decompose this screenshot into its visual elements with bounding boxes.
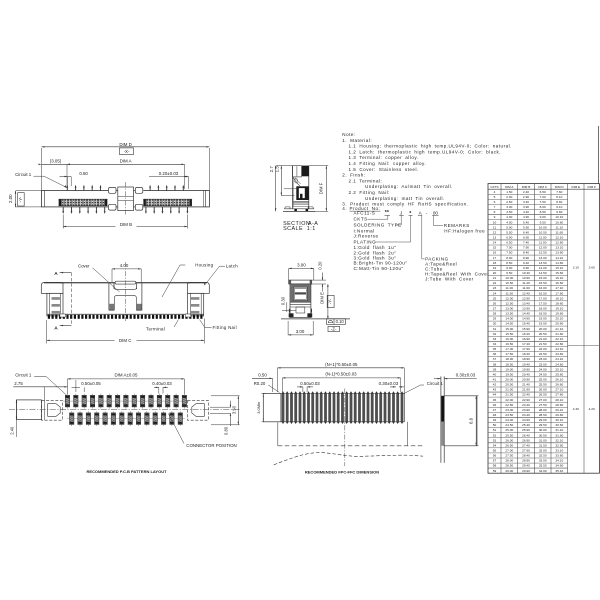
svg-text:10.00: 10.00 bbox=[505, 276, 513, 280]
svg-text:35: 35 bbox=[493, 347, 497, 351]
svg-text:55: 55 bbox=[493, 449, 497, 453]
svg-text:HF:Halogen free: HF:Halogen free bbox=[444, 229, 485, 234]
svg-text:25.50: 25.50 bbox=[539, 383, 547, 387]
svg-text:2.1 Terminal:: 2.1 Terminal: bbox=[349, 178, 383, 183]
svg-text:3.90: 3.90 bbox=[523, 205, 529, 209]
svg-text:25.90: 25.90 bbox=[522, 428, 530, 432]
svg-text:22: 22 bbox=[493, 281, 497, 285]
svg-text:51: 51 bbox=[493, 428, 497, 432]
svg-text:20.60: 20.60 bbox=[555, 322, 563, 326]
svg-text:19.50: 19.50 bbox=[539, 322, 547, 326]
svg-text:18.10: 18.10 bbox=[555, 296, 563, 300]
svg-text:24.50: 24.50 bbox=[505, 423, 513, 427]
svg-text:4: 4 bbox=[494, 190, 496, 194]
svg-text:15.10: 15.10 bbox=[555, 266, 563, 270]
svg-text:16.90: 16.90 bbox=[522, 337, 530, 341]
svg-text:27.60: 27.60 bbox=[555, 393, 563, 397]
svg-text:24.00: 24.00 bbox=[539, 367, 547, 371]
svg-text:Cover: Cover bbox=[78, 263, 90, 268]
svg-text:Note:: Note: bbox=[342, 132, 355, 137]
svg-text:12.40: 12.40 bbox=[522, 291, 530, 295]
svg-text:32.60: 32.60 bbox=[555, 443, 563, 447]
svg-text:10.40: 10.40 bbox=[522, 271, 530, 275]
svg-text:23.50: 23.50 bbox=[539, 362, 547, 366]
svg-text:6.90: 6.90 bbox=[523, 236, 529, 240]
svg-text:0.50: 0.50 bbox=[258, 373, 267, 378]
svg-text:7.40: 7.40 bbox=[523, 241, 529, 245]
svg-text:24.40: 24.40 bbox=[522, 413, 530, 417]
svg-text:8.00: 8.00 bbox=[540, 205, 546, 209]
svg-text:R0.20: R0.20 bbox=[254, 381, 266, 386]
svg-text:32.10: 32.10 bbox=[555, 438, 563, 442]
svg-text:4.90: 4.90 bbox=[523, 215, 529, 219]
svg-text:45: 45 bbox=[493, 398, 497, 402]
svg-text:DIM C: DIM C bbox=[119, 338, 131, 343]
svg-text:DIM A: DIM A bbox=[505, 185, 514, 189]
svg-text:DIM C: DIM C bbox=[538, 185, 548, 189]
svg-text:14.50: 14.50 bbox=[539, 271, 547, 275]
svg-text:23.90: 23.90 bbox=[522, 408, 530, 412]
svg-text:18.90: 18.90 bbox=[522, 357, 530, 361]
svg-text:49: 49 bbox=[493, 418, 497, 422]
svg-text:9.50: 9.50 bbox=[506, 271, 512, 275]
svg-text:28: 28 bbox=[493, 312, 497, 316]
svg-text:11.40: 11.40 bbox=[522, 281, 530, 285]
svg-text:28.50: 28.50 bbox=[505, 464, 513, 468]
svg-text:Circuit 1: Circuit 1 bbox=[15, 372, 32, 377]
svg-text:-Y-: -Y- bbox=[18, 196, 23, 202]
svg-text:25.60: 25.60 bbox=[555, 372, 563, 376]
svg-text:2.50: 2.50 bbox=[506, 200, 512, 204]
svg-text:CKTS: CKTS bbox=[490, 185, 498, 189]
svg-text:24.10: 24.10 bbox=[555, 357, 563, 361]
svg-text:29.10: 29.10 bbox=[555, 408, 563, 412]
svg-text:5.40: 5.40 bbox=[523, 220, 529, 224]
svg-text:42: 42 bbox=[493, 383, 497, 387]
svg-text:30.10: 30.10 bbox=[555, 418, 563, 422]
svg-text:1. Material:: 1. Material: bbox=[342, 138, 372, 143]
svg-text:53: 53 bbox=[493, 438, 497, 442]
svg-text:0.20±0.03: 0.20±0.03 bbox=[159, 171, 179, 176]
svg-text:14.40: 14.40 bbox=[522, 312, 530, 316]
svg-text:4.20: 4.20 bbox=[589, 407, 595, 411]
svg-text:1.3 Terminal: copper alloy.: 1.3 Terminal: copper alloy. bbox=[349, 155, 419, 160]
svg-text:23.60: 23.60 bbox=[555, 352, 563, 356]
svg-text:27.50: 27.50 bbox=[505, 454, 513, 458]
svg-text:1.4 Fitting Nail: copper alloy: 1.4 Fitting Nail: copper alloy. bbox=[349, 161, 427, 166]
svg-text:17.90: 17.90 bbox=[522, 347, 530, 351]
svg-text:DIM E: DIM E bbox=[571, 185, 580, 189]
svg-text:8.40: 8.40 bbox=[523, 251, 529, 255]
svg-text:18.00: 18.00 bbox=[539, 307, 547, 311]
svg-text:17.50: 17.50 bbox=[505, 352, 513, 356]
svg-text:J:Reverse: J:Reverse bbox=[354, 234, 379, 239]
svg-text:3.00: 3.00 bbox=[506, 205, 512, 209]
svg-text:11.60: 11.60 bbox=[556, 230, 564, 234]
svg-text:14.00: 14.00 bbox=[539, 266, 547, 270]
svg-text:48: 48 bbox=[493, 413, 497, 417]
svg-text:26.00: 26.00 bbox=[539, 388, 547, 392]
svg-text:31.10: 31.10 bbox=[555, 428, 563, 432]
svg-text:17.00: 17.00 bbox=[505, 347, 513, 351]
svg-text:41: 41 bbox=[493, 378, 497, 382]
svg-text:33.10: 33.10 bbox=[555, 449, 563, 453]
svg-text:15.60: 15.60 bbox=[555, 271, 563, 275]
svg-text:34: 34 bbox=[493, 342, 497, 346]
svg-text:21.60: 21.60 bbox=[555, 332, 563, 336]
svg-text:16.50: 16.50 bbox=[539, 291, 547, 295]
svg-text:22.00: 22.00 bbox=[505, 398, 513, 402]
svg-text:32.50: 32.50 bbox=[539, 454, 547, 458]
svg-text:8.60: 8.60 bbox=[556, 200, 562, 204]
svg-text:21.40: 21.40 bbox=[522, 383, 530, 387]
svg-text:17.60: 17.60 bbox=[555, 291, 563, 295]
svg-text:Housing: Housing bbox=[195, 262, 213, 267]
svg-text:2.7: 2.7 bbox=[269, 166, 274, 173]
svg-text:23.40: 23.40 bbox=[522, 403, 530, 407]
svg-text:16.40: 16.40 bbox=[522, 332, 530, 336]
svg-text:36: 36 bbox=[493, 352, 497, 356]
svg-text:1:Gold flash 1u": 1:Gold flash 1u" bbox=[354, 245, 397, 250]
svg-text:2.00: 2.00 bbox=[8, 194, 13, 203]
svg-text:REMARKS: REMARKS bbox=[444, 223, 470, 228]
svg-text:25.00: 25.00 bbox=[539, 378, 547, 382]
svg-text:2.90: 2.90 bbox=[523, 195, 529, 199]
svg-text:17.00: 17.00 bbox=[539, 296, 547, 300]
svg-text:32.00: 32.00 bbox=[539, 449, 547, 453]
svg-text:8.90: 8.90 bbox=[523, 256, 529, 260]
svg-text:13: 13 bbox=[493, 236, 497, 240]
svg-text:5: 5 bbox=[494, 195, 496, 199]
svg-text:19.00: 19.00 bbox=[539, 317, 547, 321]
svg-text:5.00: 5.00 bbox=[506, 225, 512, 229]
svg-text:9.00: 9.00 bbox=[506, 266, 512, 270]
svg-text:9.90: 9.90 bbox=[523, 266, 529, 270]
svg-text:19.50: 19.50 bbox=[505, 372, 513, 376]
svg-text:26.60: 26.60 bbox=[555, 383, 563, 387]
svg-text:7.90: 7.90 bbox=[523, 246, 529, 250]
svg-text:39: 39 bbox=[493, 367, 497, 371]
svg-text:11.00: 11.00 bbox=[506, 286, 514, 290]
svg-text:47: 47 bbox=[493, 408, 497, 412]
svg-text:21.00: 21.00 bbox=[539, 337, 547, 341]
svg-text:-X-: -X- bbox=[124, 149, 130, 154]
svg-text:22.10: 22.10 bbox=[555, 337, 563, 341]
svg-text:1.3: 1.3 bbox=[275, 166, 280, 173]
svg-text:25.50: 25.50 bbox=[505, 433, 513, 437]
svg-text:3.60: 3.60 bbox=[589, 266, 595, 270]
svg-text:15.50: 15.50 bbox=[539, 281, 547, 285]
svg-text:34.10: 34.10 bbox=[555, 459, 563, 463]
svg-text:7.00: 7.00 bbox=[540, 195, 546, 199]
svg-text:14.00: 14.00 bbox=[505, 317, 513, 321]
svg-text:14.60: 14.60 bbox=[555, 261, 563, 265]
svg-text:7: 7 bbox=[494, 205, 496, 209]
svg-text:13.50: 13.50 bbox=[539, 261, 547, 265]
svg-text:4.30: 4.30 bbox=[573, 407, 579, 411]
svg-text:15.40: 15.40 bbox=[522, 322, 530, 326]
svg-text:20.00: 20.00 bbox=[539, 327, 547, 331]
svg-text:27.50: 27.50 bbox=[539, 403, 547, 407]
svg-text:31.60: 31.60 bbox=[555, 433, 563, 437]
svg-text:7.00: 7.00 bbox=[506, 246, 512, 250]
svg-text:18.50: 18.50 bbox=[505, 362, 513, 366]
svg-text:21.50: 21.50 bbox=[539, 342, 547, 346]
svg-text:33.00: 33.00 bbox=[539, 459, 547, 463]
svg-text:22.50: 22.50 bbox=[539, 352, 547, 356]
svg-text:23.10: 23.10 bbox=[555, 347, 563, 351]
svg-text:2.40: 2.40 bbox=[10, 426, 15, 435]
svg-text:PLATING: PLATING bbox=[354, 240, 377, 245]
svg-text:16.10: 16.10 bbox=[555, 276, 563, 280]
svg-text:35.10: 35.10 bbox=[555, 469, 563, 473]
svg-text:16.00: 16.00 bbox=[539, 286, 547, 290]
svg-text:25.00: 25.00 bbox=[505, 428, 513, 432]
svg-text:14.10: 14.10 bbox=[555, 256, 563, 260]
svg-text:19.00: 19.00 bbox=[505, 367, 513, 371]
svg-text:0.80: 0.80 bbox=[224, 426, 229, 435]
svg-text:10.50: 10.50 bbox=[539, 230, 547, 234]
svg-text:24.00: 24.00 bbox=[505, 418, 513, 422]
svg-text:12: 12 bbox=[493, 230, 497, 234]
svg-text:40: 40 bbox=[493, 372, 497, 376]
svg-text:8: 8 bbox=[494, 210, 496, 214]
svg-text:7.60: 7.60 bbox=[556, 190, 562, 194]
svg-text:DIM D: DIM D bbox=[555, 185, 565, 189]
svg-text:5.90: 5.90 bbox=[523, 225, 529, 229]
svg-text:16.00: 16.00 bbox=[505, 337, 513, 341]
svg-text:3.00: 3.00 bbox=[297, 263, 306, 268]
svg-text:(N+1)*0.50±0.05: (N+1)*0.50±0.05 bbox=[325, 362, 358, 367]
svg-text:33.50: 33.50 bbox=[539, 464, 547, 468]
svg-text:CONNECTOR POSITION: CONNECTOR POSITION bbox=[186, 443, 236, 448]
svg-text:27.00: 27.00 bbox=[505, 449, 513, 453]
svg-text:21.00: 21.00 bbox=[505, 388, 513, 392]
svg-text:CKTS: CKTS bbox=[354, 217, 368, 222]
svg-text:17: 17 bbox=[493, 256, 497, 260]
svg-text:C:Matt-Tin 90-120u": C:Matt-Tin 90-120u" bbox=[354, 266, 404, 271]
svg-text:15.00: 15.00 bbox=[539, 276, 547, 280]
svg-text:SOLDERING TYPE: SOLDERING TYPE bbox=[354, 223, 402, 228]
svg-text:0.30: 0.30 bbox=[281, 296, 286, 305]
svg-text:31.50: 31.50 bbox=[539, 443, 547, 447]
svg-text:23.50: 23.50 bbox=[505, 413, 513, 417]
svg-text:26.50: 26.50 bbox=[539, 393, 547, 397]
svg-text:18.60: 18.60 bbox=[555, 301, 563, 305]
svg-text:1.50: 1.50 bbox=[506, 190, 512, 194]
svg-text:25: 25 bbox=[493, 296, 497, 300]
svg-text:Latch: Latch bbox=[226, 264, 238, 269]
svg-text:17.40: 17.40 bbox=[522, 342, 530, 346]
svg-text:19.90: 19.90 bbox=[522, 367, 530, 371]
svg-text:11.10: 11.10 bbox=[556, 225, 564, 229]
svg-text:16.50: 16.50 bbox=[505, 342, 513, 346]
svg-text:0.30±0.03: 0.30±0.03 bbox=[379, 381, 399, 386]
svg-text:28.00: 28.00 bbox=[539, 408, 547, 412]
svg-text:20.10: 20.10 bbox=[555, 317, 563, 321]
svg-text:29.90: 29.90 bbox=[522, 469, 530, 473]
svg-text:AFC11-S: AFC11-S bbox=[354, 210, 376, 215]
svg-text:26.00: 26.00 bbox=[505, 438, 513, 442]
svg-text:0.30±0.03: 0.30±0.03 bbox=[456, 373, 476, 378]
svg-text:20: 20 bbox=[493, 271, 497, 275]
svg-text:21.50: 21.50 bbox=[505, 393, 513, 397]
svg-text:18.40: 18.40 bbox=[522, 352, 530, 356]
svg-text:3.50: 3.50 bbox=[231, 405, 236, 414]
svg-text:38: 38 bbox=[493, 362, 497, 366]
svg-text:20.00: 20.00 bbox=[505, 378, 513, 382]
svg-text:(3.05): (3.05) bbox=[50, 159, 62, 164]
svg-text:23.00: 23.00 bbox=[505, 408, 513, 412]
svg-text:DIM B: DIM B bbox=[120, 222, 132, 227]
svg-text:12.00: 12.00 bbox=[505, 296, 513, 300]
svg-text:18.00: 18.00 bbox=[505, 357, 513, 361]
svg-text:6.50: 6.50 bbox=[506, 241, 512, 245]
svg-text:14.90: 14.90 bbox=[522, 317, 530, 321]
svg-text:9.50: 9.50 bbox=[540, 220, 546, 224]
svg-text:10.60: 10.60 bbox=[555, 220, 563, 224]
svg-text:23.00: 23.00 bbox=[539, 357, 547, 361]
svg-text:14: 14 bbox=[493, 241, 497, 245]
svg-text:52: 52 bbox=[493, 433, 497, 437]
svg-text:26.40: 26.40 bbox=[522, 433, 530, 437]
svg-text:Underplating: Au/matt Tin over: Underplating: Au/matt Tin overall. bbox=[365, 184, 453, 189]
svg-text:2.75: 2.75 bbox=[14, 381, 23, 386]
svg-text:Terminal: Terminal bbox=[146, 326, 165, 331]
svg-text:30.00: 30.00 bbox=[539, 428, 547, 432]
svg-text:0.50±0.03: 0.50±0.03 bbox=[300, 381, 320, 386]
svg-text:Circuit 1: Circuit 1 bbox=[15, 172, 32, 177]
svg-text:2. Finsh:: 2. Finsh: bbox=[342, 173, 365, 178]
svg-text:-Y-: -Y- bbox=[328, 298, 333, 304]
svg-text:-Z-: -Z- bbox=[331, 327, 337, 332]
svg-text:1.5 Cover: Stainless steel.: 1.5 Cover: Stainless steel. bbox=[349, 167, 419, 172]
svg-text:26.50: 26.50 bbox=[505, 443, 513, 447]
svg-text:0.10: 0.10 bbox=[336, 319, 345, 324]
svg-text:6.40: 6.40 bbox=[523, 230, 529, 234]
svg-text:3.50: 3.50 bbox=[506, 210, 512, 214]
svg-text:3.00: 3.00 bbox=[296, 329, 305, 334]
svg-text:27: 27 bbox=[493, 307, 497, 311]
svg-text:13.00: 13.00 bbox=[505, 307, 513, 311]
svg-text:J:Tube With Cover: J:Tube With Cover bbox=[425, 277, 474, 282]
svg-text:59: 59 bbox=[493, 469, 497, 473]
svg-text:29.60: 29.60 bbox=[555, 413, 563, 417]
svg-text:6.0: 6.0 bbox=[469, 417, 474, 424]
svg-text:27.40: 27.40 bbox=[522, 443, 530, 447]
svg-text:9.40: 9.40 bbox=[523, 261, 529, 265]
svg-text:37: 37 bbox=[493, 357, 497, 361]
svg-text:4.50: 4.50 bbox=[506, 220, 512, 224]
svg-text:Fitting Nail: Fitting Nail bbox=[213, 325, 237, 330]
svg-text:1:1: 1:1 bbox=[307, 226, 316, 232]
svg-text:12.00: 12.00 bbox=[539, 246, 547, 250]
svg-text:DIM A: DIM A bbox=[120, 158, 132, 163]
svg-text:27.00: 27.00 bbox=[539, 398, 547, 402]
svg-text:16: 16 bbox=[493, 251, 497, 255]
svg-text:9: 9 bbox=[494, 215, 496, 219]
svg-text:27.90: 27.90 bbox=[522, 449, 530, 453]
svg-text:13.10: 13.10 bbox=[555, 246, 563, 250]
svg-text:RECOMMENDED FPC-FFC DIMENSION: RECOMMENDED FPC-FFC DIMENSION bbox=[305, 470, 379, 475]
svg-text:2.00: 2.00 bbox=[506, 195, 512, 199]
svg-text:7.50: 7.50 bbox=[540, 200, 546, 204]
svg-text:17.10: 17.10 bbox=[555, 286, 563, 290]
svg-text:11.50: 11.50 bbox=[506, 291, 514, 295]
svg-text:28.10: 28.10 bbox=[555, 398, 563, 402]
svg-text:4.00: 4.00 bbox=[120, 263, 129, 268]
svg-text:9.60: 9.60 bbox=[556, 210, 562, 214]
svg-text:58: 58 bbox=[493, 464, 497, 468]
svg-text:24.60: 24.60 bbox=[555, 362, 563, 366]
svg-text:32: 32 bbox=[493, 332, 497, 336]
svg-text:13.50: 13.50 bbox=[505, 312, 513, 316]
svg-text:11.50: 11.50 bbox=[539, 241, 547, 245]
svg-text:2.40: 2.40 bbox=[523, 190, 529, 194]
svg-text:8.00: 8.00 bbox=[506, 256, 512, 260]
svg-text:28.50: 28.50 bbox=[539, 413, 547, 417]
svg-text:50: 50 bbox=[493, 423, 497, 427]
svg-text:27.10: 27.10 bbox=[555, 388, 563, 392]
svg-text:14.50: 14.50 bbox=[505, 322, 513, 326]
svg-text:19.60: 19.60 bbox=[555, 312, 563, 316]
svg-text:3.10: 3.10 bbox=[573, 266, 579, 270]
svg-text:4.: 4. bbox=[342, 206, 347, 211]
svg-text:12.10: 12.10 bbox=[555, 236, 563, 240]
svg-text:A: A bbox=[54, 326, 58, 332]
svg-text:34.60: 34.60 bbox=[555, 464, 563, 468]
svg-text:29.00: 29.00 bbox=[539, 418, 547, 422]
svg-text:DIM A±0.05: DIM A±0.05 bbox=[115, 372, 138, 377]
svg-text:20.50: 20.50 bbox=[505, 383, 513, 387]
svg-text:RECOMMENDED P.C.B PATTERN LAYO: RECOMMENDED P.C.B PATTERN LAYOUT bbox=[86, 469, 167, 474]
svg-text:24: 24 bbox=[493, 291, 497, 295]
svg-text:11.90: 11.90 bbox=[522, 286, 530, 290]
svg-text:6: 6 bbox=[494, 200, 496, 204]
svg-text:25.40: 25.40 bbox=[522, 423, 530, 427]
svg-text:23: 23 bbox=[493, 286, 497, 290]
svg-text:15.90: 15.90 bbox=[522, 327, 530, 331]
svg-text:19: 19 bbox=[493, 266, 497, 270]
svg-text:29.50: 29.50 bbox=[539, 423, 547, 427]
svg-text:24.90: 24.90 bbox=[522, 418, 530, 422]
svg-text:12.90: 12.90 bbox=[522, 296, 530, 300]
svg-text:21.10: 21.10 bbox=[555, 327, 563, 331]
svg-text:10.00: 10.00 bbox=[539, 225, 547, 229]
svg-text:7.50: 7.50 bbox=[506, 251, 512, 255]
svg-text:13.90: 13.90 bbox=[522, 307, 530, 311]
svg-text:13.00: 13.00 bbox=[539, 256, 547, 260]
svg-text:22.90: 22.90 bbox=[522, 398, 530, 402]
svg-text:12.50: 12.50 bbox=[505, 301, 513, 305]
svg-text:20.50: 20.50 bbox=[539, 332, 547, 336]
svg-text:12.50: 12.50 bbox=[539, 251, 547, 255]
svg-text:29.40: 29.40 bbox=[522, 464, 530, 468]
svg-text:15.00: 15.00 bbox=[505, 327, 513, 331]
svg-text:22.40: 22.40 bbox=[522, 393, 530, 397]
svg-text:9.00: 9.00 bbox=[540, 215, 546, 219]
svg-text:4.40: 4.40 bbox=[523, 210, 529, 214]
svg-text:5.50: 5.50 bbox=[506, 230, 512, 234]
svg-text:20.40: 20.40 bbox=[522, 372, 530, 376]
svg-text:57: 57 bbox=[493, 459, 497, 463]
svg-text:33: 33 bbox=[493, 337, 497, 341]
svg-text:2.2 Fitting Nail:: 2.2 Fitting Nail: bbox=[349, 190, 390, 195]
svg-text:4.00: 4.00 bbox=[506, 215, 512, 219]
svg-text:16.60: 16.60 bbox=[555, 281, 563, 285]
svg-text:8.50: 8.50 bbox=[540, 210, 546, 214]
svg-text:28.00: 28.00 bbox=[505, 459, 513, 463]
